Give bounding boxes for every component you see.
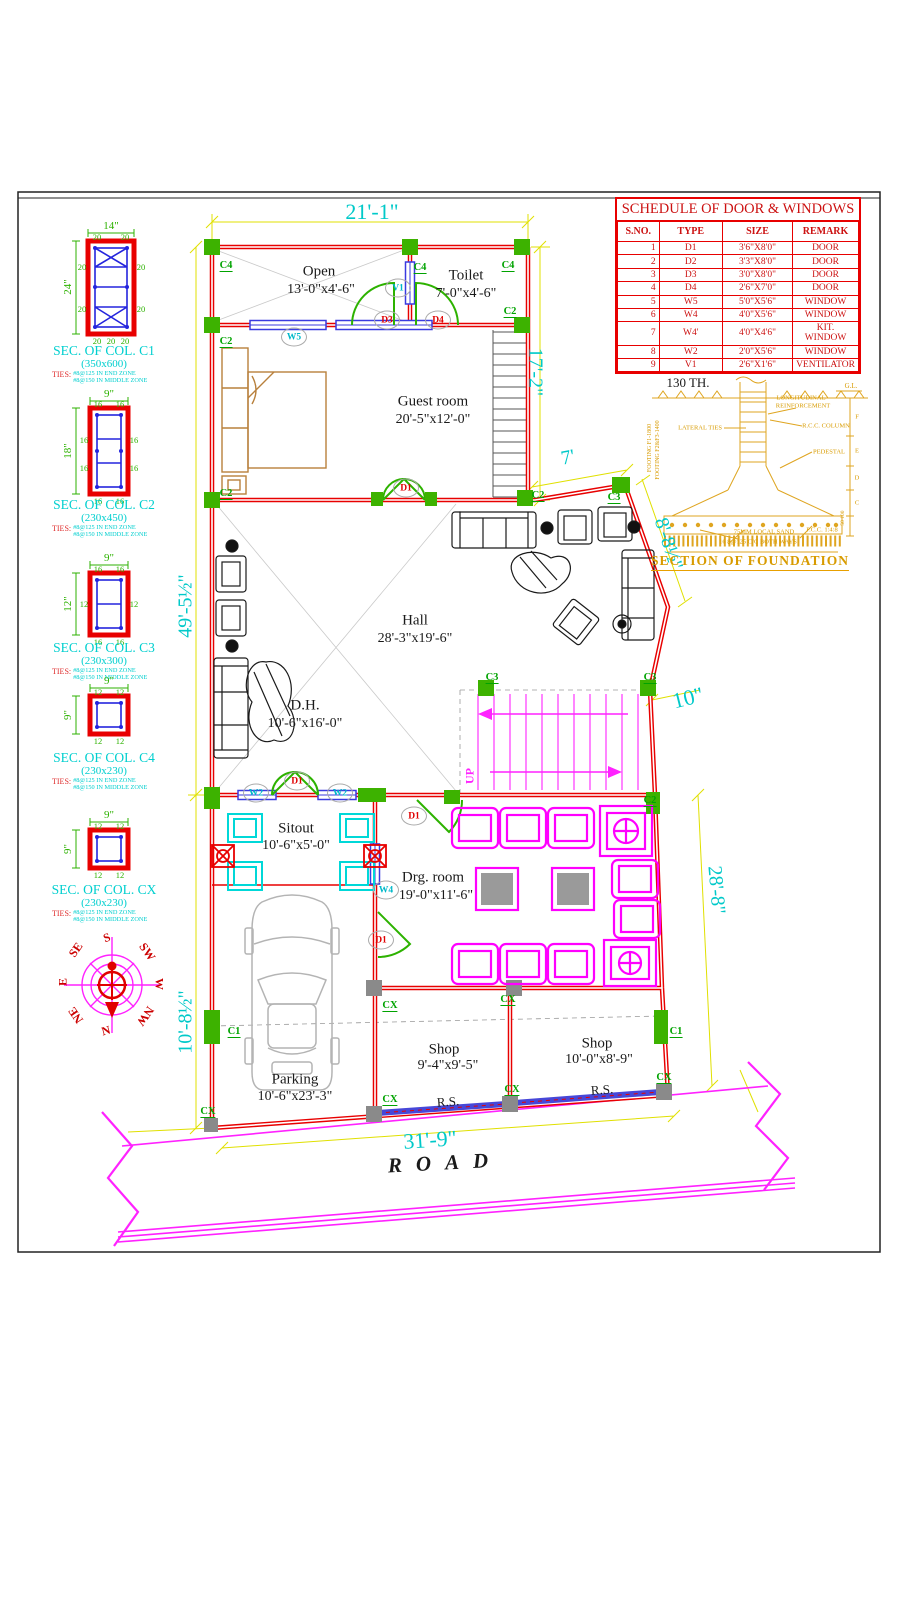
bar-spacing: 12 [94, 821, 103, 831]
drg-table [557, 873, 589, 905]
cell: WINDOW [793, 308, 859, 321]
door-tag-d3: D3 [374, 311, 400, 330]
mesh-label: 16 8@125 C/C BOTH WAYS [719, 539, 797, 546]
cell: DOOR [793, 242, 859, 255]
schedule-title: SCHEDULE OF DOOR & WINDOWS [617, 199, 859, 221]
door-tag-d1-drg: D1 [401, 807, 427, 826]
bar-spacing: 16 [80, 435, 89, 445]
room-dim-dh: 10'-6"x16'-0" [268, 716, 343, 732]
window-tag-w5: W5 [281, 328, 307, 347]
col-header-size: SIZE [722, 222, 792, 242]
pcc-label: P.C.C. 1:4:8 [806, 527, 837, 534]
room-dim-parking: 10'-6"x23'-3" [258, 1089, 333, 1105]
bar-spacing: 16 [116, 564, 125, 574]
ties-note-cx: TIES: #8@125 IN END ZONE#8@150 IN MIDDLE… [52, 909, 147, 923]
dim-top: 21'-1" [345, 199, 398, 225]
table-row: 9V12'6"X1'6"VENTILATOR [618, 359, 859, 372]
cell: 4 [618, 282, 660, 295]
cell: W4' [659, 322, 722, 345]
stairs-up-label: UP [463, 768, 478, 784]
table-row: 3D33'0"X8'0"DOOR [618, 268, 859, 281]
ties-end-zone: #8@125 IN END ZONE [73, 667, 147, 674]
bar-spacing: 12 [94, 736, 103, 746]
ties-end-zone: #8@125 IN END ZONE [73, 909, 147, 916]
section-title-c3: SEC. OF COL. C3 [53, 640, 155, 656]
rolling-shutter-label: R.S. [436, 1093, 459, 1111]
door-tag-d1-lower: D1 [368, 931, 394, 950]
col-tag-c4: C4 [220, 260, 233, 272]
table-row: 8W22'0"X5'6"WINDOW [618, 345, 859, 358]
c3-height-dim: 12" [62, 596, 74, 612]
cell: 5'0"X5'6" [722, 295, 792, 308]
car [245, 895, 339, 1090]
room-dim-sitout: 10'-6"x5'-0" [262, 838, 330, 854]
ties-label: TIES: [52, 777, 71, 786]
door-tag-d1-guest: D1 [393, 479, 419, 498]
bar-spacing: 16 [116, 399, 125, 409]
ties-label: TIES: [52, 370, 71, 379]
room-label-dh: D.H. [290, 698, 319, 715]
ties-end-zone: #8@125 IN END ZONE [73, 524, 147, 531]
section-size-c1: (350x600) [81, 358, 127, 370]
footing-note-1: FOOTING F1-1800 [647, 424, 653, 472]
compass-e: E [56, 978, 71, 986]
c2-height-dim: 18" [62, 443, 74, 459]
cell: 4'0"X4'6" [722, 322, 792, 345]
c4-width-dim: 9" [104, 675, 114, 687]
cell: DOOR [793, 268, 859, 281]
section-title-cx: SEC. OF COL. CX [52, 882, 157, 898]
window-tag-w4: W4 [373, 881, 399, 900]
rolling-shutter-label: R.S. [590, 1081, 613, 1099]
cx-height-dim: 9" [62, 844, 74, 854]
ties-end-zone: #8@125 IN END ZONE [73, 777, 147, 784]
cell: 5 [618, 295, 660, 308]
col-tag-c2: C2 [644, 795, 657, 807]
floor-plan-sheet: SCHEDULE OF DOOR & WINDOWS S.NO. TYPE SI… [0, 0, 900, 1600]
room-label-sitout: Sitout [278, 821, 314, 838]
col-tag-c2: C2 [504, 306, 517, 318]
col-tag-cx: CX [504, 1084, 519, 1096]
col-tag-c3: C3 [486, 672, 499, 684]
foundation-title: SECTION OF FOUNDATION [651, 553, 849, 571]
cell: 2'0"X5'6" [722, 345, 792, 358]
cell: D3 [659, 268, 722, 281]
cell: DOOR [793, 255, 859, 268]
drg-table [481, 873, 513, 905]
bar-spacing: 20 [137, 262, 146, 272]
bar-spacing: 20 [121, 232, 130, 242]
c1-width-dim: 14" [103, 220, 119, 232]
ties-label: TIES: [52, 909, 71, 918]
col-header-remark: REMARK [793, 222, 859, 242]
bar-spacing: 16 [130, 463, 139, 473]
schedule-header-row: S.NO. TYPE SIZE REMARK [618, 222, 859, 242]
col-tag-c3: C3 [644, 672, 657, 684]
bar-spacing: 12 [116, 870, 125, 880]
col-tag-cx: CX [656, 1072, 671, 1084]
cell: 2'6"X7'0" [722, 282, 792, 295]
cell: 7 [618, 322, 660, 345]
col-tag-cx: CX [200, 1106, 215, 1118]
ties-middle-zone: #8@150 IN MIDDLE ZONE [73, 377, 147, 384]
room-dim-guest: 20'-5"x12'-0" [396, 412, 471, 428]
cell: VENTILATOR [793, 359, 859, 372]
bar-spacing: 12 [116, 687, 125, 697]
col-tag-c1: C1 [670, 1026, 683, 1038]
cell: WINDOW [793, 345, 859, 358]
ties-end-zone: #8@125 IN END ZONE [73, 370, 147, 377]
cell: D2 [659, 255, 722, 268]
room-label-drg: Drg. room [402, 870, 464, 887]
ties-note-c2: TIES: #8@125 IN END ZONE#8@150 IN MIDDLE… [52, 524, 147, 538]
section-title-c1: SEC. OF COL. C1 [53, 343, 155, 359]
col-tag-c2: C2 [220, 488, 233, 500]
bar-spacing: 12 [130, 599, 139, 609]
guest-bed [222, 348, 326, 494]
section-title-c2: SEC. OF COL. C2 [53, 497, 155, 513]
long-reinf-label-1: LONGITUDINAL [776, 395, 825, 402]
cell: 3'0"X8'0" [722, 268, 792, 281]
cell: 3'6"X8'0" [722, 242, 792, 255]
compass-w: W [152, 978, 167, 990]
cell: W2 [659, 345, 722, 358]
bar-spacing: 12 [94, 687, 103, 697]
c4-height-dim: 9" [62, 710, 74, 720]
bar-spacing: 12 [116, 821, 125, 831]
door-swings [272, 283, 462, 957]
long-reinf-label-2: REINFORCEMENT [776, 403, 831, 410]
col-tag-cx: CX [382, 1000, 397, 1012]
bar-spacing: 20 [93, 232, 102, 242]
col-tag-cx: CX [382, 1094, 397, 1106]
bar-spacing: 16 [80, 463, 89, 473]
col-tag-c4: C4 [414, 262, 427, 274]
ties-label: TIES: [52, 524, 71, 533]
cell: WINDOW [793, 295, 859, 308]
level-f: F [855, 414, 859, 421]
pedestal-label: PEDESTAL [813, 449, 845, 456]
table-row: 1D13'6"X8'0"DOOR [618, 242, 859, 255]
section-size-c3: (230x300) [81, 655, 127, 667]
cell: V1 [659, 359, 722, 372]
gl-label: G.L. [845, 382, 858, 390]
cell: DOOR [793, 282, 859, 295]
col-tag-c2: C2 [220, 336, 233, 348]
room-label-shop1: Shop [429, 1042, 460, 1059]
ties-note-c3: TIES: #8@125 IN END ZONE#8@150 IN MIDDLE… [52, 667, 147, 681]
ties-note-c1: TIES: #8@125 IN END ZONE#8@150 IN MIDDLE… [52, 370, 147, 384]
table-row: 7W4'4'0"X4'6"KIT. WINDOW [618, 322, 859, 345]
level-e: E [855, 448, 859, 455]
table-row: 6W44'0"X5'6"WINDOW [618, 308, 859, 321]
door-window-schedule: SCHEDULE OF DOOR & WINDOWS S.NO. TYPE SI… [615, 197, 861, 374]
room-label-hall: Hall [402, 613, 428, 630]
room-dim-hall: 28'-3"x19'-6" [378, 631, 453, 647]
room-label-open: Open [303, 264, 336, 281]
cell: 9 [618, 359, 660, 372]
table-row: 5W55'0"X5'6"WINDOW [618, 295, 859, 308]
ties-middle-zone: #8@150 IN MIDDLE ZONE [73, 916, 147, 923]
sand-label: 75MM LOCAL SAND [734, 529, 794, 536]
stairs-upper [493, 330, 526, 497]
dim-left-lower: 10'-8½" [175, 990, 198, 1053]
cell: 2'6"X1'6" [722, 359, 792, 372]
col-tag-cx: CX [500, 994, 515, 1006]
bar-spacing: 12 [94, 870, 103, 880]
cell: 4'0"X5'6" [722, 308, 792, 321]
level-d: D [855, 475, 860, 482]
door-tag-d1-dh: D1 [284, 772, 310, 791]
ties-middle-zone: #8@150 IN MIDDLE ZONE [73, 531, 147, 538]
cell: W4 [659, 308, 722, 321]
col-tag-c4: C4 [502, 260, 515, 272]
bar-spacing: 16 [130, 435, 139, 445]
window-tag-w2-left: W2 [243, 784, 269, 803]
room-dim-open: 13'-0"x4'-6" [287, 282, 355, 298]
scale-note: 50 100 [840, 510, 846, 525]
c2-width-dim: 9" [104, 388, 114, 400]
dim-right-lower: 28'-8" [702, 865, 729, 915]
dim-right-stair: 17'-2" [524, 348, 547, 396]
vent-tag-v1: V1 [385, 279, 411, 298]
lateral-ties-label: LATERAL TIES [678, 425, 722, 432]
c1-height-dim: 24" [62, 279, 74, 295]
room-label-toilet: Toilet [449, 268, 484, 285]
door-tag-d4: D4 [425, 311, 451, 330]
bar-spacing: 20 [78, 262, 87, 272]
section-size-c2: (230x450) [81, 512, 127, 524]
col-tag-c3: C3 [608, 492, 621, 504]
table-row: 2D23'3"X8'0"DOOR [618, 255, 859, 268]
section-size-cx: (230x230) [81, 897, 127, 909]
ties-note-c4: TIES: #8@125 IN END ZONE#8@150 IN MIDDLE… [52, 777, 147, 791]
dim-left-upper: 49'-5½" [175, 574, 198, 637]
ties-middle-zone: #8@150 IN MIDDLE ZONE [73, 784, 147, 791]
room-dim-drg: 19'-0"x11'-6" [399, 888, 473, 904]
room-dim-shop1: 9'-4"x9'-5" [418, 1058, 479, 1074]
ties-label: TIES: [52, 667, 71, 676]
bar-spacing: 16 [94, 399, 103, 409]
col-header-type: TYPE [659, 222, 722, 242]
cx-width-dim: 9" [104, 809, 114, 821]
cell: 1 [618, 242, 660, 255]
cell: 2 [618, 255, 660, 268]
cell: D4 [659, 282, 722, 295]
table-row: 4D42'6"X7'0"DOOR [618, 282, 859, 295]
col-tag-c2: C2 [532, 490, 545, 502]
cell: 3'3"X8'0" [722, 255, 792, 268]
section-title-c4: SEC. OF COL. C4 [53, 750, 155, 766]
footing-note-2: FOOTING F2&F3-1400 [655, 420, 661, 479]
room-dim-toilet: 7'-0"x4'-6" [436, 286, 497, 302]
rcc-column-label: R.C.C. COLUMN [802, 423, 850, 430]
window-tag-w2-right: W2 [327, 784, 353, 803]
bar-spacing: 12 [116, 736, 125, 746]
room-label-shop2: Shop [582, 1036, 613, 1053]
bar-spacing: 12 [80, 599, 89, 609]
cell: W5 [659, 295, 722, 308]
room-label-parking: Parking [272, 1072, 319, 1089]
col-header-sno: S.NO. [618, 222, 660, 242]
c3-width-dim: 9" [104, 552, 114, 564]
cell: D1 [659, 242, 722, 255]
room-label-guest: Guest room [398, 394, 468, 411]
room-dim-shop2: 10'-0"x8'-9" [565, 1052, 633, 1068]
section-size-c4: (230x230) [81, 765, 127, 777]
col-tag-c1: C1 [228, 1026, 241, 1038]
bar-spacing: 20 [78, 304, 87, 314]
wall-thickness-note: 130 TH. [666, 375, 709, 391]
cell: 3 [618, 268, 660, 281]
walls [212, 247, 668, 1128]
cell: KIT. WINDOW [793, 322, 859, 345]
stairs-up-magenta [478, 694, 638, 790]
bar-spacing: 16 [94, 564, 103, 574]
cell: 8 [618, 345, 660, 358]
bar-spacing: 20 [137, 304, 146, 314]
cell: 6 [618, 308, 660, 321]
level-c: C [855, 500, 859, 507]
